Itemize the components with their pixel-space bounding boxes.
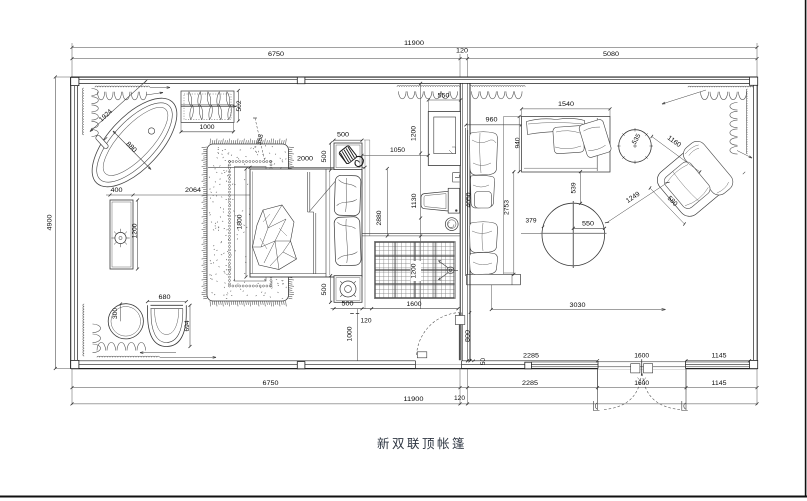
svg-text:120: 120: [454, 395, 465, 402]
svg-text:2285: 2285: [522, 380, 538, 387]
svg-text:5080: 5080: [603, 51, 619, 58]
svg-text:680: 680: [159, 294, 171, 301]
svg-text:11900: 11900: [404, 40, 424, 47]
svg-text:1540: 1540: [558, 101, 574, 108]
svg-text:1000: 1000: [347, 326, 354, 341]
svg-text:1145: 1145: [712, 352, 727, 359]
svg-text:6750: 6750: [263, 380, 279, 387]
svg-text:2064: 2064: [185, 187, 201, 194]
svg-text:1200: 1200: [411, 263, 418, 278]
svg-text:500: 500: [321, 283, 328, 295]
svg-text:800: 800: [465, 330, 472, 342]
svg-text:1200: 1200: [411, 126, 418, 141]
svg-text:2000: 2000: [297, 156, 313, 163]
svg-text:2753: 2753: [504, 200, 511, 215]
svg-text:502: 502: [236, 100, 243, 111]
svg-text:694: 694: [184, 320, 191, 331]
svg-text:1600: 1600: [634, 352, 649, 359]
svg-text:50: 50: [481, 357, 487, 365]
svg-text:550: 550: [582, 221, 594, 228]
svg-text:1800: 1800: [237, 214, 244, 229]
svg-text:11900: 11900: [404, 396, 424, 403]
svg-text:500: 500: [321, 150, 328, 162]
svg-text:1145: 1145: [712, 380, 727, 387]
svg-text:500: 500: [342, 301, 354, 308]
svg-text:400: 400: [111, 187, 123, 194]
svg-text:960: 960: [486, 116, 498, 123]
svg-text:2880: 2880: [376, 210, 383, 225]
svg-text:6750: 6750: [268, 51, 284, 58]
svg-text:940: 940: [515, 137, 522, 148]
svg-text:1600: 1600: [407, 301, 422, 308]
svg-text:2285: 2285: [523, 352, 539, 359]
svg-text:1000: 1000: [200, 124, 215, 131]
svg-text:539: 539: [571, 182, 578, 193]
svg-text:3030: 3030: [570, 302, 586, 309]
svg-text:120: 120: [361, 318, 372, 325]
svg-text:1050: 1050: [390, 147, 405, 154]
svg-text:1200: 1200: [132, 223, 139, 238]
svg-text:4050: 4050: [466, 192, 473, 207]
svg-text:1600: 1600: [634, 380, 649, 387]
svg-text:550: 550: [438, 92, 450, 99]
svg-text:120: 120: [456, 47, 468, 54]
svg-text:4900: 4900: [47, 214, 54, 230]
svg-text:300: 300: [112, 308, 119, 319]
svg-text:379: 379: [526, 218, 537, 225]
svg-text:1130: 1130: [411, 193, 418, 208]
svg-text:新双联顶帐篷: 新双联顶帐篷: [377, 436, 467, 451]
svg-text:500: 500: [337, 132, 349, 139]
